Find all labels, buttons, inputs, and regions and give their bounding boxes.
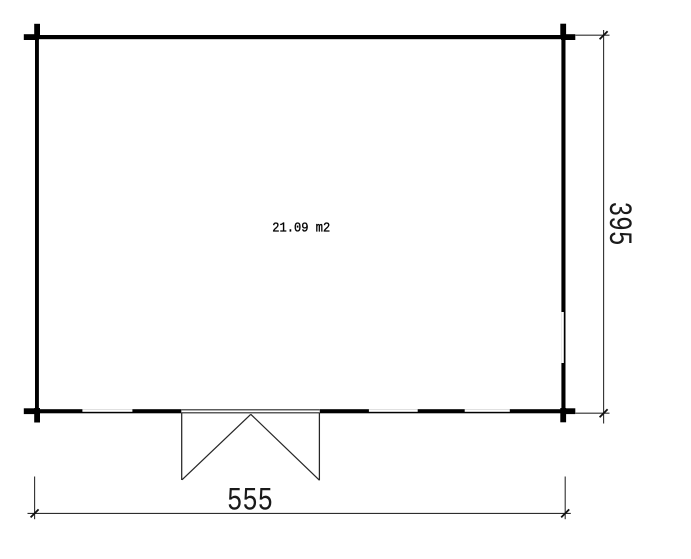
svg-text:21.09 m2: 21.09 m2 bbox=[272, 221, 330, 237]
svg-text:395: 395 bbox=[600, 202, 637, 246]
svg-text:555: 555 bbox=[227, 483, 273, 520]
